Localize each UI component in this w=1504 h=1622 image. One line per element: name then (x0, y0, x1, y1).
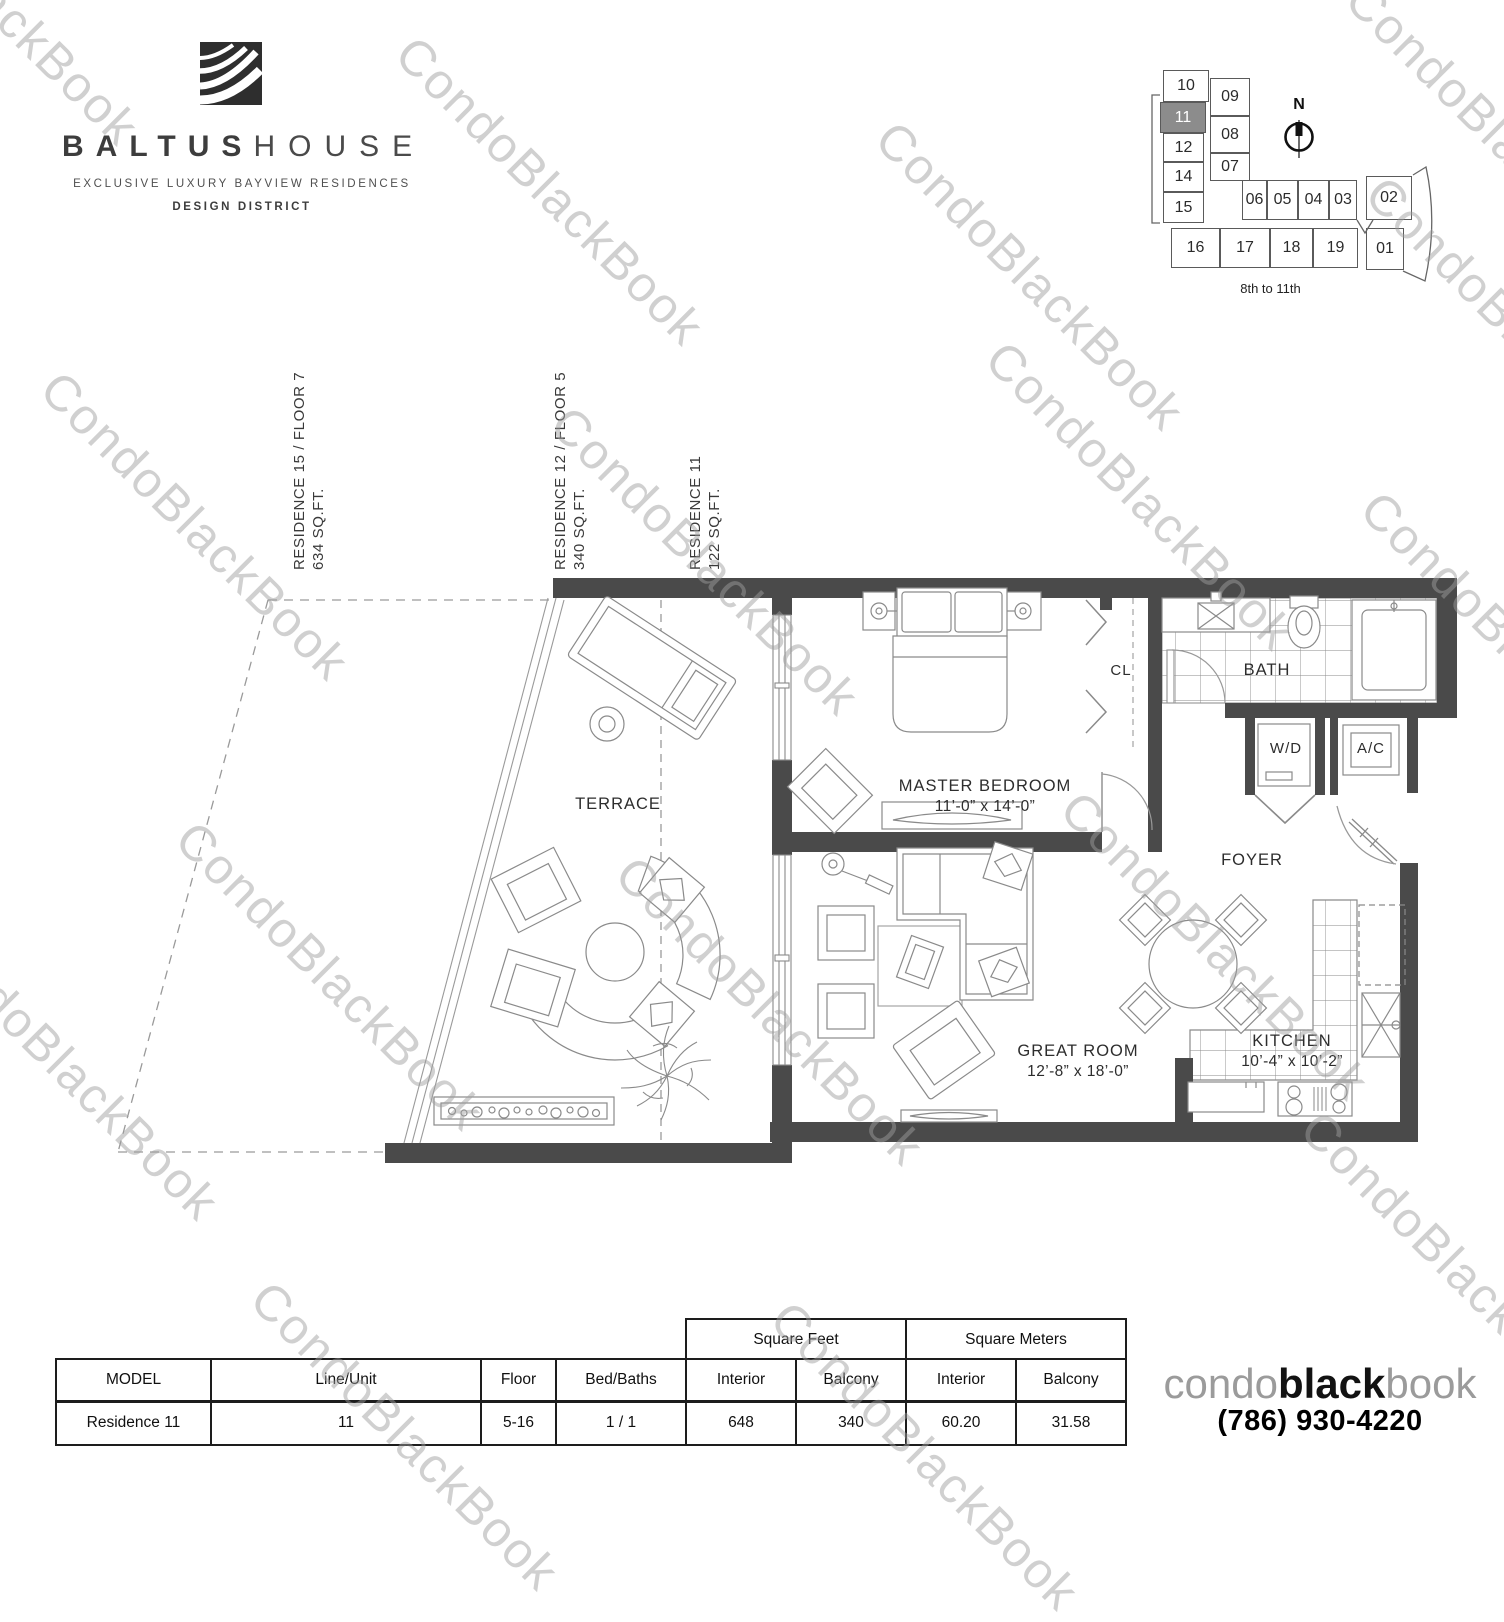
condoblackbook-logo: condoblackbook (1150, 1360, 1490, 1408)
master-bedroom-dims: 11’-0” x 14’-0” (899, 798, 1072, 816)
cell-model: Residence 11 (56, 1401, 211, 1445)
cell-sqm-balcony: 31.58 (1016, 1401, 1126, 1445)
floorplan-page: { "brand": { "name_bold": "BALTUS", "nam… (0, 0, 1504, 1502)
dining-set (1120, 895, 1267, 1034)
cell-bed-baths: 1 / 1 (556, 1401, 686, 1445)
cell-sqft-balcony: 340 (796, 1401, 906, 1445)
spec-table-header-row: MODEL Line/Unit Floor Bed/Baths Interior… (56, 1359, 1126, 1401)
ac-label: A/C (1357, 740, 1385, 757)
great-room-label: GREAT ROOM (1017, 1042, 1138, 1061)
bedroom-door (1102, 772, 1152, 832)
group-header-square-feet: Square Feet (686, 1319, 906, 1359)
logo-black: black (1278, 1360, 1385, 1407)
room-label-closet: CL (1110, 662, 1131, 679)
col-sqm-balcony: Balcony (1016, 1359, 1126, 1401)
room-label-wd: W/D (1270, 740, 1302, 757)
spec-table-data-row: Residence 11 11 5-16 1 / 1 648 340 60.20… (56, 1401, 1126, 1445)
keyplan-outline-accents (1152, 95, 1432, 281)
group-header-square-meters: Square Meters (906, 1319, 1126, 1359)
north-arrow-icon (1286, 120, 1313, 158)
great-room-dims: 12’-8” x 18’-0” (1017, 1063, 1138, 1081)
logo-condo: condo (1164, 1360, 1278, 1407)
room-label-terrace: TERRACE (575, 795, 661, 814)
terrace-label: TERRACE (575, 795, 661, 814)
room-label-ac: A/C (1357, 740, 1385, 757)
wd-closet (1255, 724, 1315, 823)
wd-label: W/D (1270, 740, 1302, 757)
col-model: MODEL (56, 1359, 211, 1401)
logo-book: book (1385, 1360, 1476, 1407)
foyer-label: FOYER (1221, 851, 1283, 870)
room-label-foyer: FOYER (1221, 851, 1283, 870)
col-sqft-balcony: Balcony (796, 1359, 906, 1401)
cell-floor: 5-16 (481, 1401, 556, 1445)
great-room-furniture (818, 842, 1033, 1122)
closet-label: CL (1110, 662, 1131, 679)
kitchen-label: KITCHEN (1241, 1032, 1343, 1051)
dashed-extension-outline (118, 600, 553, 1152)
spec-table: MODEL Line/Unit Floor Bed/Baths Interior… (55, 1358, 1127, 1446)
spec-table-group-header: Square Feet Square Meters (685, 1318, 1127, 1359)
bath-label: BATH (1244, 661, 1291, 680)
cell-sqft-interior: 648 (686, 1401, 796, 1445)
cell-line-unit: 11 (211, 1401, 481, 1445)
col-bed-baths: Bed/Baths (556, 1359, 686, 1401)
col-line-unit: Line/Unit (211, 1359, 481, 1401)
cell-sqm-interior: 60.20 (906, 1401, 1016, 1445)
room-label-master-bedroom: MASTER BEDROOM 11’-0” x 14’-0” (899, 777, 1072, 816)
room-label-bath: BATH (1244, 661, 1291, 680)
col-sqm-interior: Interior (906, 1359, 1016, 1401)
col-sqft-interior: Interior (686, 1359, 796, 1401)
room-label-great-room: GREAT ROOM 12’-8” x 18’-0” (1017, 1042, 1138, 1081)
phone-number: (786) 930-4220 (1150, 1405, 1490, 1438)
kitchen-dims: 10’-4” x 10’-2” (1241, 1053, 1343, 1071)
room-label-kitchen: KITCHEN 10’-4” x 10’-2” (1241, 1032, 1343, 1071)
entry-door (1337, 806, 1397, 864)
master-bedroom-label: MASTER BEDROOM (899, 777, 1072, 796)
col-floor: Floor (481, 1359, 556, 1401)
closet-bifold-doors (1086, 600, 1106, 733)
